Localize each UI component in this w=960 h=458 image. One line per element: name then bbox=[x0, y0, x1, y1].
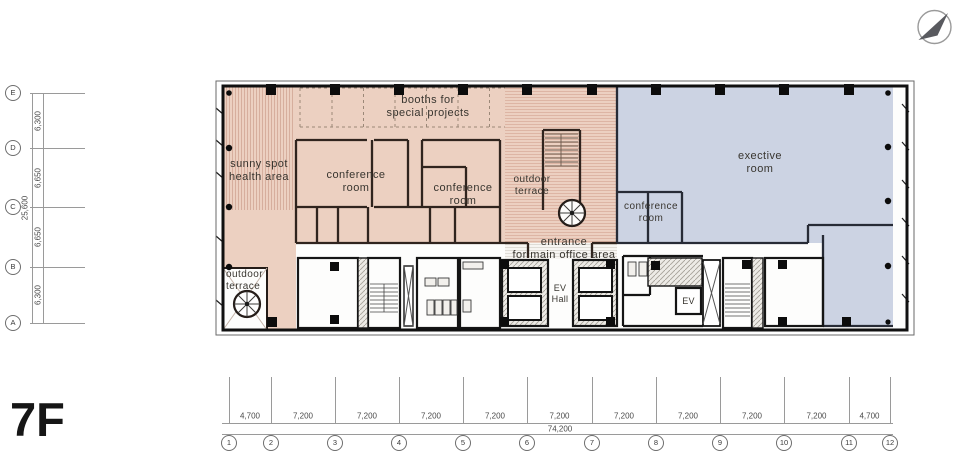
col-dim-label: 7,200 bbox=[614, 412, 634, 421]
grid-row-bubble: D bbox=[5, 140, 21, 156]
col-grid-line bbox=[527, 377, 528, 423]
grid-row-bubble: E bbox=[5, 85, 21, 101]
col-dim-label: 7,200 bbox=[742, 412, 762, 421]
col-grid-line bbox=[784, 377, 785, 423]
row-grid-line bbox=[30, 148, 85, 149]
col-grid-line bbox=[720, 377, 721, 423]
col-dim-label: 7,200 bbox=[678, 412, 698, 421]
grid-row-bubble: B bbox=[5, 259, 21, 275]
col-dim-label: 7,200 bbox=[357, 412, 377, 421]
row-grid-line bbox=[30, 267, 85, 268]
grid-col-bubble: 2 bbox=[263, 435, 279, 451]
row-dim-label: 6,650 bbox=[34, 227, 43, 247]
grid-col-bubble: 9 bbox=[712, 435, 728, 451]
row-grid-line bbox=[30, 207, 85, 208]
col-total-label: 74,200 bbox=[548, 424, 572, 433]
col-grid-line bbox=[399, 377, 400, 423]
col-dim-label: 7,200 bbox=[549, 412, 569, 421]
grid-row-bubble: C bbox=[5, 199, 21, 215]
row-grid-line bbox=[30, 323, 85, 324]
row-dim-label: 6,650 bbox=[34, 167, 43, 187]
grid-col-bubble: 6 bbox=[519, 435, 535, 451]
grid-col-bubble: 1 bbox=[221, 435, 237, 451]
col-grid-line bbox=[849, 377, 850, 423]
col-dim-line bbox=[222, 434, 893, 435]
grid-col-bubble: 12 bbox=[882, 435, 898, 451]
grid-col-bubble: 4 bbox=[391, 435, 407, 451]
grid-col-bubble: 7 bbox=[584, 435, 600, 451]
row-dim-label: 6,300 bbox=[34, 110, 43, 130]
col-grid-line bbox=[656, 377, 657, 423]
col-dim-label: 7,200 bbox=[293, 412, 313, 421]
grid-col-bubble: 8 bbox=[648, 435, 664, 451]
row-grid-line bbox=[30, 93, 85, 94]
col-dim-label: 4,700 bbox=[240, 412, 260, 421]
floor-plan-page: booths for special projects sunny spot h… bbox=[0, 0, 960, 458]
col-dim-label: 7,200 bbox=[421, 412, 441, 421]
col-grid-line bbox=[271, 377, 272, 423]
grid-row-bubble: A bbox=[5, 315, 21, 331]
row-total-label: 25,600 bbox=[21, 196, 30, 220]
grid-col-bubble: 11 bbox=[841, 435, 857, 451]
col-grid-line bbox=[335, 377, 336, 423]
col-dim-label: 7,200 bbox=[806, 412, 826, 421]
grid-dimension-layer: EDCBA6,3006,6506,6506,30025,600123456789… bbox=[0, 0, 960, 458]
row-dim-line bbox=[43, 93, 44, 323]
col-dim-label: 4,700 bbox=[859, 412, 879, 421]
col-grid-line bbox=[592, 377, 593, 423]
col-grid-line bbox=[229, 377, 230, 423]
grid-col-bubble: 5 bbox=[455, 435, 471, 451]
grid-col-bubble: 10 bbox=[776, 435, 792, 451]
row-dim-label: 6,300 bbox=[34, 285, 43, 305]
col-grid-line bbox=[890, 377, 891, 423]
col-dim-label: 7,200 bbox=[485, 412, 505, 421]
col-grid-line bbox=[463, 377, 464, 423]
grid-col-bubble: 3 bbox=[327, 435, 343, 451]
